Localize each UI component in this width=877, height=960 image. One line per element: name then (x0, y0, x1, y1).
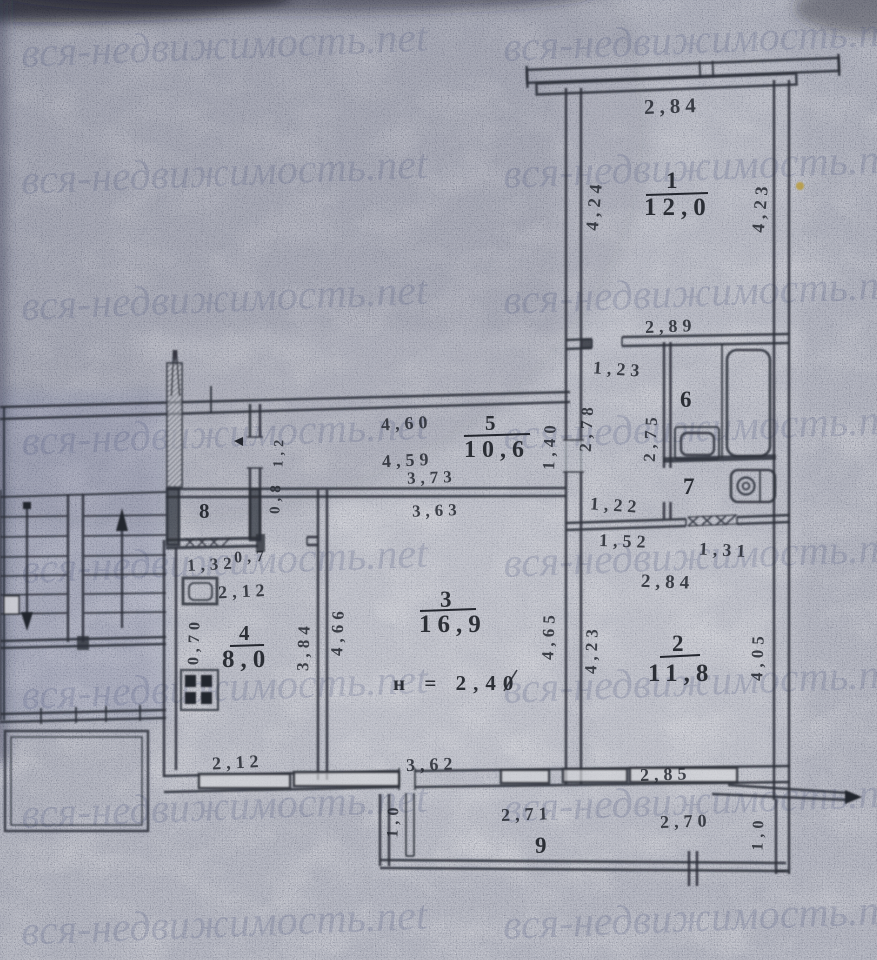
svg-text:2: 2 (672, 631, 684, 656)
svg-text:4,23: 4,23 (581, 624, 602, 674)
svg-text:1: 1 (666, 168, 678, 193)
svg-text:1,31: 1,31 (698, 539, 750, 562)
svg-text:6: 6 (680, 387, 692, 412)
svg-text:8: 8 (199, 499, 210, 523)
svg-text:8,0: 8,0 (222, 646, 271, 673)
svg-text:1,52: 1,52 (599, 530, 651, 552)
svg-text:4,60: 4,60 (380, 412, 432, 435)
svg-text:1,0: 1,0 (749, 815, 767, 851)
svg-text:2,84: 2,84 (644, 93, 702, 119)
svg-text:4,05: 4,05 (747, 631, 768, 681)
svg-text:2,71: 2,71 (501, 803, 553, 825)
svg-text:3: 3 (440, 587, 452, 612)
svg-text:4,66: 4,66 (327, 606, 348, 656)
svg-text:1,23: 1,23 (592, 357, 645, 381)
svg-text:2,12: 2,12 (218, 580, 270, 603)
svg-text:3,84: 3,84 (293, 621, 314, 671)
svg-text:1,0: 1,0 (384, 802, 402, 838)
svg-text:10,6: 10,6 (464, 437, 530, 463)
svg-text:3,62: 3,62 (406, 753, 458, 775)
svg-text:12,0: 12,0 (644, 194, 712, 221)
svg-text:3,63: 3,63 (412, 500, 462, 521)
svg-text:0,70: 0,70 (185, 617, 204, 666)
svg-text:4,65: 4,65 (538, 610, 559, 660)
svg-text:16,9: 16,9 (419, 611, 487, 638)
svg-text:1,32: 1,32 (187, 553, 238, 575)
svg-text:9: 9 (535, 833, 547, 858)
svg-text:7: 7 (683, 474, 695, 499)
svg-text:3,73: 3,73 (407, 467, 457, 488)
svg-text:0,7: 0,7 (234, 548, 270, 567)
svg-text:5: 5 (485, 411, 496, 435)
svg-text:2,75: 2,75 (640, 412, 662, 463)
svg-text:2,78: 2,78 (576, 402, 598, 453)
svg-text:н = 2,40: н = 2,40 (393, 671, 520, 695)
svg-text:2,12: 2,12 (212, 751, 264, 774)
svg-text:2,89: 2,89 (645, 315, 697, 337)
svg-text:2,85: 2,85 (640, 763, 692, 785)
svg-text:1,40: 1,40 (539, 420, 560, 470)
svg-text:11,8: 11,8 (648, 660, 714, 687)
svg-text:4: 4 (239, 621, 250, 645)
svg-text:2,70: 2,70 (660, 810, 712, 832)
svg-text:1,22: 1,22 (589, 493, 642, 517)
svg-text:0,8: 0,8 (267, 480, 284, 514)
svg-text:1,2: 1,2 (271, 435, 287, 468)
svg-text:2,84: 2,84 (641, 571, 695, 594)
